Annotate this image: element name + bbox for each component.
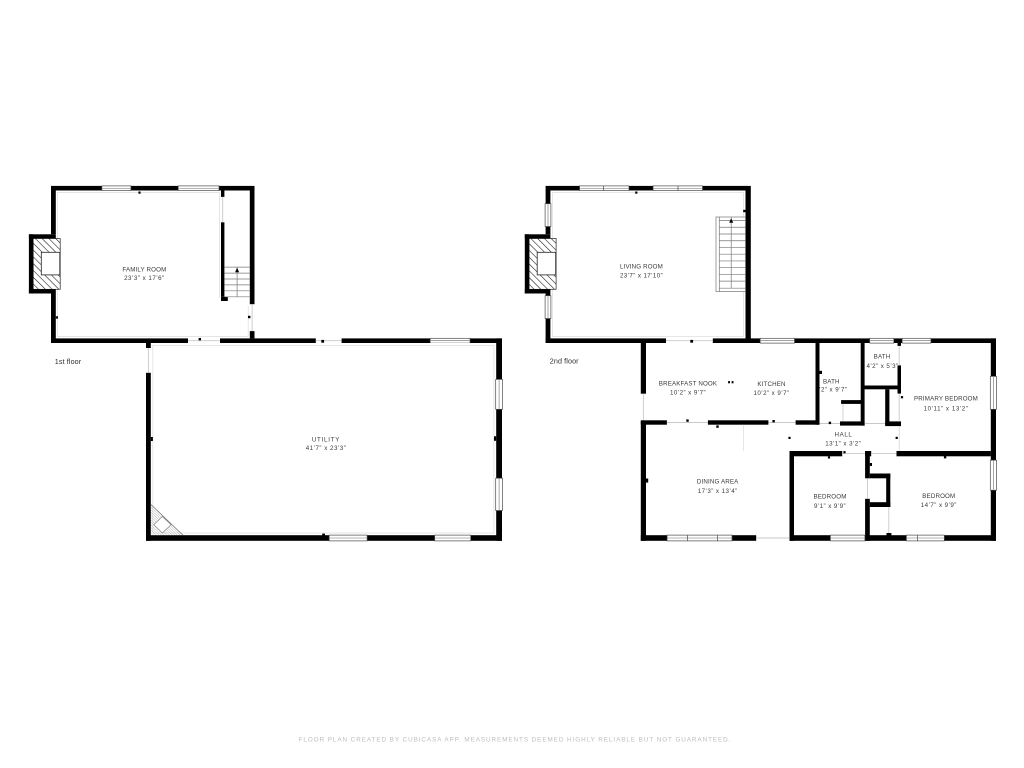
svg-text:BATH: BATH <box>874 353 891 360</box>
svg-text:BATH: BATH <box>823 379 840 386</box>
svg-text:4’2” x 9’7”: 4’2” x 9’7” <box>815 387 847 394</box>
svg-text:FLOOR PLAN CREATED BY CUBICASA: FLOOR PLAN CREATED BY CUBICASA APP. MEAS… <box>299 736 732 743</box>
svg-text:KITCHEN: KITCHEN <box>757 381 785 388</box>
svg-text:10’2” x 9’7”: 10’2” x 9’7” <box>670 390 706 397</box>
svg-text:1st floor: 1st floor <box>55 357 82 366</box>
svg-text:10’11” x 13’2”: 10’11” x 13’2” <box>924 406 969 413</box>
svg-text:DINING AREA: DINING AREA <box>697 479 739 486</box>
svg-text:BEDROOM: BEDROOM <box>813 494 846 501</box>
svg-text:PRIMARY BEDROOM: PRIMARY BEDROOM <box>914 396 978 403</box>
svg-text:FAMILY ROOM: FAMILY ROOM <box>122 267 166 274</box>
svg-text:9’1” x 9’9”: 9’1” x 9’9” <box>814 503 846 510</box>
svg-text:4’2” x 5’3”: 4’2” x 5’3” <box>866 363 898 370</box>
svg-text:10’2” x 9’7”: 10’2” x 9’7” <box>753 390 789 397</box>
svg-text:2nd floor: 2nd floor <box>550 357 579 366</box>
svg-text:HALL: HALL <box>835 432 853 439</box>
svg-text:14’7” x 9’9”: 14’7” x 9’9” <box>921 502 957 509</box>
svg-text:17’3” x 13’4”: 17’3” x 13’4” <box>698 488 738 495</box>
svg-text:23’7” x 17’10”: 23’7” x 17’10” <box>620 272 663 279</box>
svg-text:LIVING ROOM: LIVING ROOM <box>620 264 663 271</box>
svg-text:23’3” x 17’6”: 23’3” x 17’6” <box>124 275 165 282</box>
svg-text:41’7” x 23’3”: 41’7” x 23’3” <box>306 445 347 452</box>
svg-text:13’1” x 3’2”: 13’1” x 3’2” <box>825 440 861 447</box>
svg-text:BREAKFAST NOOK: BREAKFAST NOOK <box>659 381 718 388</box>
svg-text:BEDROOM: BEDROOM <box>922 493 955 500</box>
svg-text:UTILITY: UTILITY <box>312 437 340 444</box>
